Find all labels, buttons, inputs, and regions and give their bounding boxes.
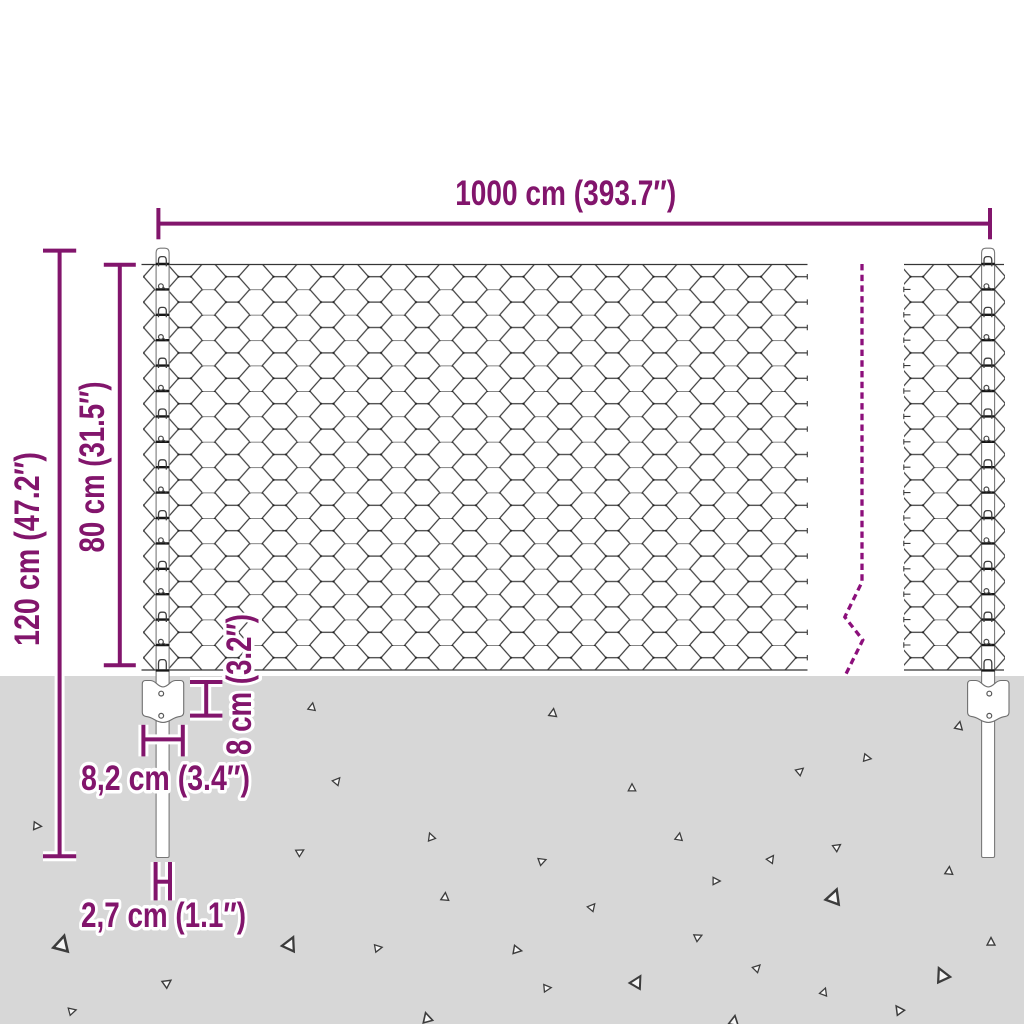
svg-text:120 cm (47.2″): 120 cm (47.2″) (8, 452, 47, 646)
svg-text:8,2 cm (3.4″): 8,2 cm (3.4″) (81, 759, 250, 798)
svg-text:2,7 cm (1.1″): 2,7 cm (1.1″) (81, 896, 246, 935)
svg-text:1000 cm (393.7″): 1000 cm (393.7″) (455, 174, 676, 213)
svg-text:8 cm (3.2″): 8 cm (3.2″) (220, 614, 259, 755)
svg-text:80 cm (31.5″): 80 cm (31.5″) (73, 382, 112, 553)
